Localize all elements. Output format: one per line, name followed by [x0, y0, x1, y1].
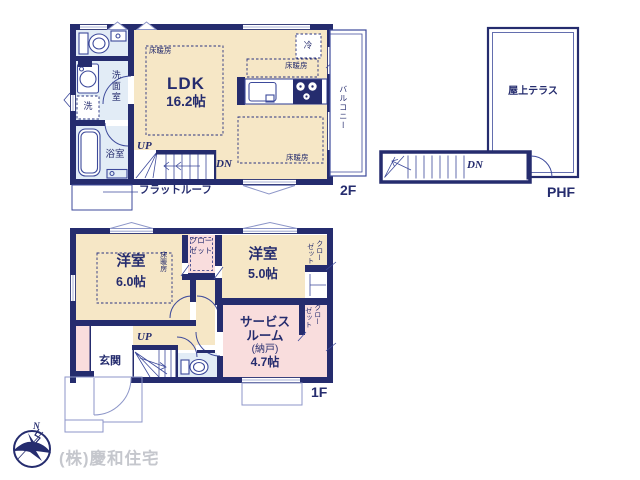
flat-roof-label: フラットルーフ	[139, 185, 212, 197]
roof-vent-icon	[243, 223, 297, 229]
stairs-up-label: UP	[137, 331, 152, 343]
bedroom1-size-label: 6.0帖	[91, 276, 171, 290]
service-room-label: サービス	[225, 316, 305, 330]
compass-north-label: N	[33, 422, 40, 432]
stairs-1f	[133, 350, 175, 377]
hall-1f	[196, 280, 215, 345]
ldk-size-label: 16.2帖	[146, 95, 226, 110]
front-door-arc	[94, 378, 131, 415]
company-name: (株)慶和住宅	[59, 450, 160, 468]
closet-label: クロー	[313, 304, 321, 325]
entrance-area	[90, 326, 133, 377]
balcony-label: バルコニー	[338, 85, 347, 130]
service-room-size-label: 4.7帖	[225, 356, 305, 369]
stove-icon	[293, 80, 322, 105]
roof-vent-icon	[243, 186, 295, 195]
closet-label: クロー	[187, 237, 215, 245]
service-room-sublabel: (納戸)	[225, 344, 305, 355]
hall-2f	[134, 150, 156, 179]
floorplan-page: LDK 16.2帖 洗面室 浴室 洗 冷 床暖房 床暖房 床暖房 バルコニー フ…	[0, 0, 640, 480]
flat-roof-outline	[72, 185, 138, 210]
stairs-dn-label: DN	[467, 159, 483, 171]
balcony-outline	[330, 30, 366, 176]
service-room-label: ルーム	[225, 330, 305, 344]
toilet-1f-icon	[181, 360, 208, 375]
floor-heating-label: 床暖房	[285, 62, 308, 70]
roof-terrace-label: 屋上テラス	[491, 86, 575, 97]
floor-heating-label: 床暖房	[286, 154, 309, 162]
closet-label: ゼット	[187, 247, 215, 255]
floor-2f-plan	[64, 22, 366, 210]
floor-phf-label: PHF	[547, 185, 575, 200]
stairs-up-label: UP	[137, 140, 152, 152]
bedroom2-size-label: 5.0帖	[223, 268, 303, 282]
laundry-label: 洗	[79, 102, 97, 112]
closet-label: クロー	[315, 240, 323, 261]
closet-shelf	[305, 272, 327, 298]
bedroom2-label: 洋室	[223, 248, 303, 264]
stairs-dn-label: DN	[216, 158, 232, 170]
kitchen-counter	[237, 77, 327, 105]
compass-icon	[13, 429, 51, 467]
ldk-label: LDK	[146, 75, 226, 94]
terrace-door-leaf	[527, 154, 532, 180]
closet-label: ゼット	[306, 243, 314, 264]
floor-2f-label: 2F	[340, 183, 356, 198]
porch-outline	[65, 377, 302, 432]
floor-1f-label: 1F	[311, 385, 327, 400]
fridge-label: 冷	[299, 41, 317, 50]
entrance-label: 玄関	[90, 355, 130, 367]
roof-vent-icon	[110, 223, 153, 229]
washbasin-icon	[78, 64, 99, 93]
washroom-label: 洗面室	[110, 70, 120, 103]
closet-label: ゼット	[304, 307, 312, 328]
floor-heating-label: 床暖房	[149, 47, 172, 55]
bathroom-label: 浴室	[100, 150, 130, 160]
floor-heating-label: 床暖房	[159, 251, 167, 272]
